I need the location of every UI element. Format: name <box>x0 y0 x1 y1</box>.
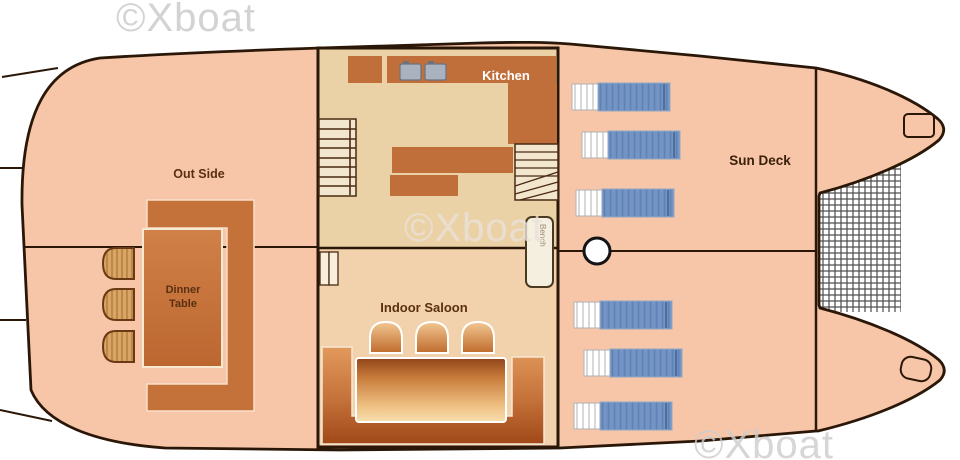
sun-lounger <box>576 189 674 217</box>
deck-table <box>584 238 610 264</box>
deck-plan-page: Kitchen Indoor Saloon Dinner Table Out S… <box>0 0 960 460</box>
kitchen-counter-left <box>348 56 382 83</box>
kitchen-island-counter-small <box>390 175 458 196</box>
label-indoor-saloon: Indoor Saloon <box>380 300 467 315</box>
saloon-table <box>356 358 506 422</box>
label-kitchen: Kitchen <box>482 68 530 83</box>
kitchen-counter-right <box>508 83 557 144</box>
saloon-chair <box>462 322 494 353</box>
sun-lounger <box>584 349 682 377</box>
sun-lounger <box>574 301 672 329</box>
label-dinner-table-line2: Table <box>169 298 197 310</box>
label-dinner-table-line1: Dinner <box>166 284 202 296</box>
saloon-chair <box>416 322 448 353</box>
sink-icon <box>425 61 446 80</box>
saloon-door-leaf <box>329 252 338 285</box>
watermark-bottom: ©Xboat <box>694 423 834 460</box>
mooring-line-bottom <box>0 410 52 421</box>
label-sun-deck: Sun Deck <box>729 153 791 168</box>
sun-lounger <box>574 402 672 430</box>
sun-lounger <box>572 83 670 111</box>
dinner-stool <box>103 331 134 362</box>
dinner-stool <box>103 289 134 320</box>
kitchen-stairs-left <box>319 119 356 196</box>
watermark-top: ©Xboat <box>116 0 256 40</box>
dinner-stool <box>103 248 134 279</box>
saloon-chair <box>370 322 402 353</box>
label-out-side: Out Side <box>173 167 224 181</box>
sink-icon <box>400 61 421 80</box>
sun-lounger <box>582 131 680 159</box>
kitchen-stairs-right <box>515 144 558 200</box>
mooring-line-top <box>2 68 58 77</box>
kitchen-island-counter <box>392 147 513 173</box>
saloon-door-leaf <box>320 252 329 285</box>
watermark-center: ©Xboat <box>404 206 544 250</box>
deck-plan-canvas: Kitchen Indoor Saloon Dinner Table Out S… <box>0 0 960 460</box>
bow-hatch-top <box>904 114 934 137</box>
